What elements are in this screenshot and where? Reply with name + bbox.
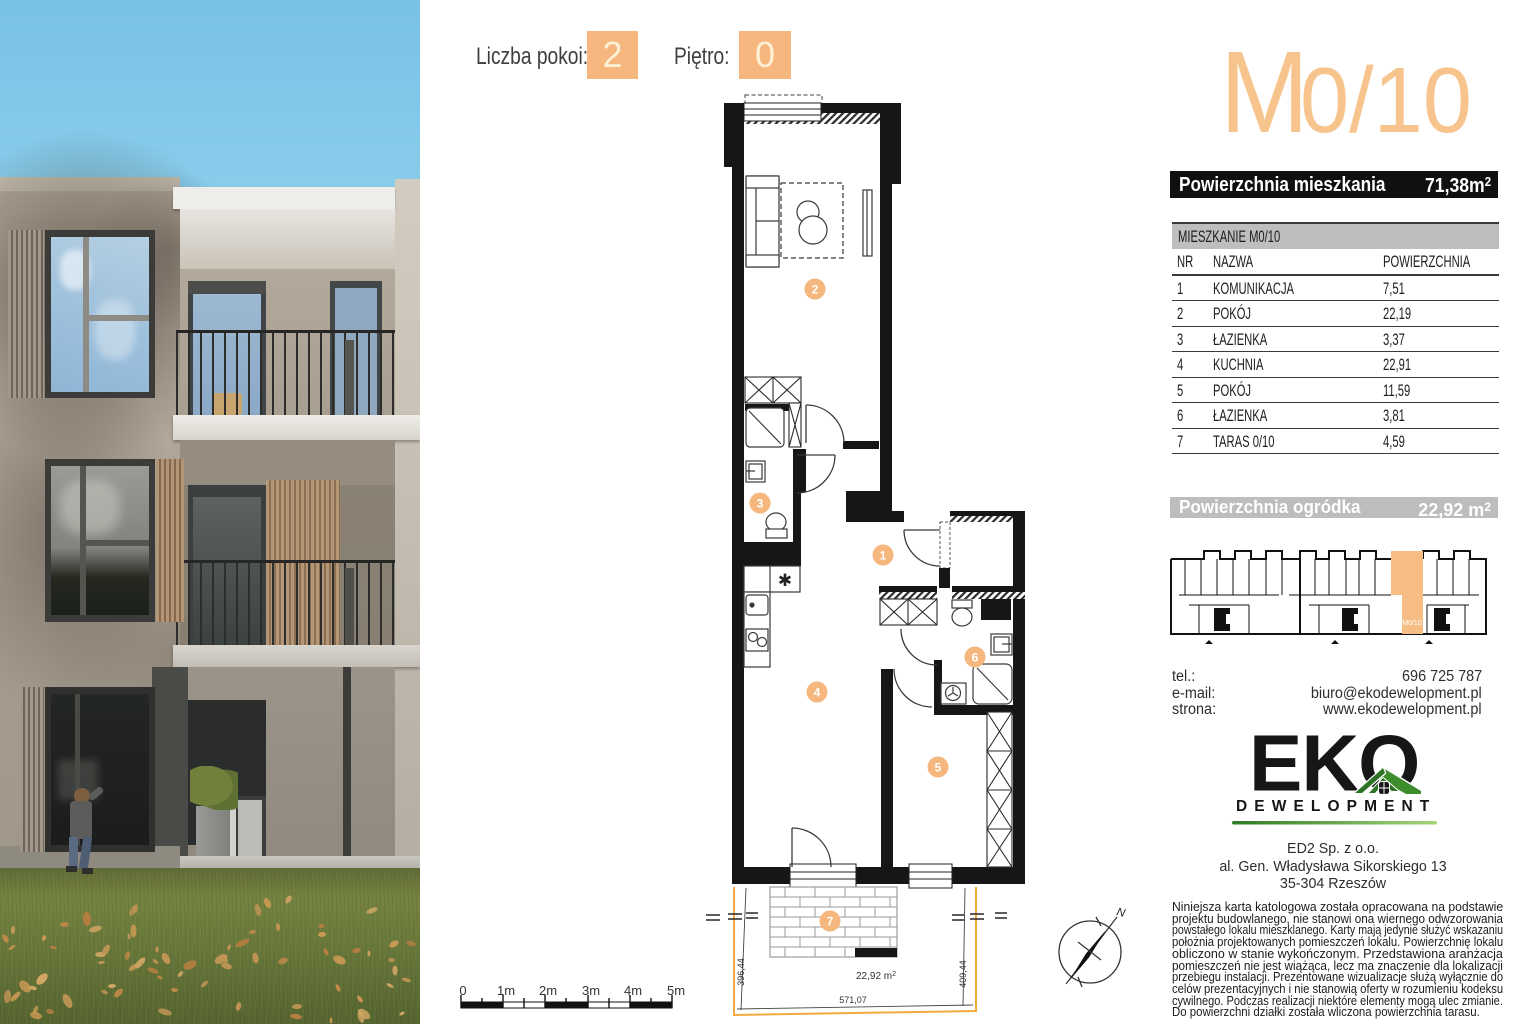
svg-text:7: 7 [827,915,834,929]
svg-text:4m: 4m [624,983,642,998]
svg-text:22,92 m2: 22,92 m2 [856,971,896,982]
svg-text:✱: ✱ [778,571,792,590]
svg-text:1m: 1m [497,983,515,998]
svg-text:1: 1 [880,549,887,563]
svg-text:4: 4 [814,686,821,700]
svg-text:6: 6 [972,651,979,665]
svg-text:EKO: EKO [1249,727,1419,808]
svg-text:2: 2 [812,283,819,297]
svg-text:571,07: 571,07 [839,995,867,1005]
svg-text:409,44: 409,44 [958,960,968,988]
svg-text:3: 3 [757,497,764,511]
svg-text:DEWELOPMENT: DEWELOPMENT [1236,798,1436,815]
svg-text:5m: 5m [667,983,685,998]
svg-text:2m: 2m [539,983,557,998]
svg-text:M0/10: M0/10 [1402,620,1422,627]
svg-text:3m: 3m [582,983,600,998]
svg-text:396,44: 396,44 [736,958,746,986]
svg-text:5: 5 [935,761,942,775]
svg-text:N: N [1115,906,1127,920]
